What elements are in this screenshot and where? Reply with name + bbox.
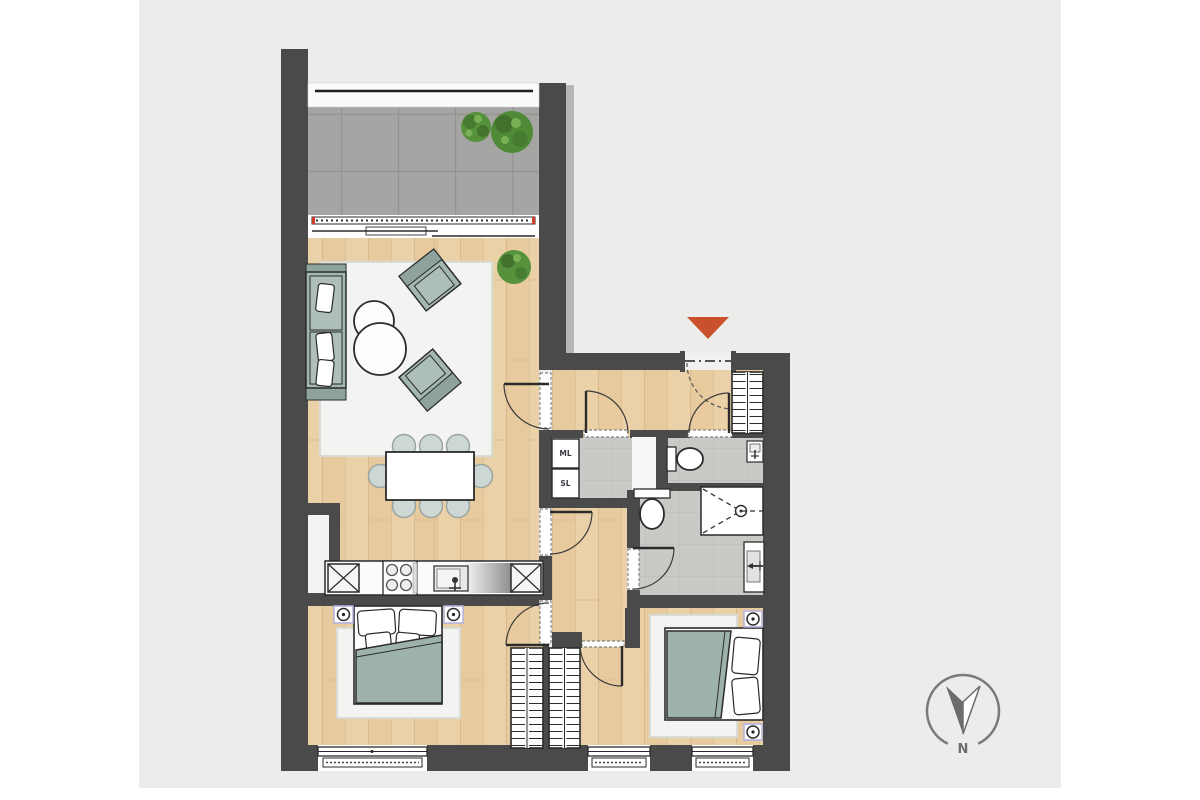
hallway-floor [552,508,627,648]
toilet-icon [667,447,703,471]
window [692,745,753,771]
nightstand-lamp [444,606,463,623]
laundry-closet: ML SL [552,439,579,498]
door-threshold [582,641,624,647]
floor-plan-drawing: ML SL [0,0,1200,800]
corner-basin-icon [747,441,763,462]
kitchen [325,561,543,595]
washbasin-icon [744,542,764,592]
wardrobe [511,648,543,748]
door-threshold [540,373,551,428]
shower-icon [701,487,763,535]
sliding-door-accent [312,217,315,224]
wardrobe [549,648,580,748]
door-threshold [628,549,639,589]
plant-icon [461,112,491,142]
entry-wardrobe [732,372,763,433]
coffee-table [354,323,406,375]
double-bed [665,628,763,720]
nightstand-lamp [744,724,762,740]
stove-icon [383,561,417,595]
door-threshold [688,430,732,437]
window [588,745,650,771]
appliance-icon [511,564,541,592]
nightstand-lamp [744,611,762,627]
appliance-icon [328,564,359,592]
sofa [306,264,346,400]
door-threshold [584,430,628,437]
door-threshold [540,601,551,644]
sink-icon [434,566,468,591]
floor-plan-page: ML SL [0,0,1200,800]
shaft [632,437,656,490]
sliding-door [308,215,539,238]
dining-table [386,452,474,500]
dryer-label: SL [560,479,570,488]
nightstand-lamp [334,606,353,623]
sliding-door-accent [532,217,535,224]
double-bed [354,606,442,704]
window [318,745,427,771]
door-threshold [540,509,551,555]
balcony-railing [308,83,539,107]
plant-icon [491,111,533,153]
plant-icon [497,250,531,284]
north-label: N [958,742,969,757]
washer-label: ML [559,449,571,458]
